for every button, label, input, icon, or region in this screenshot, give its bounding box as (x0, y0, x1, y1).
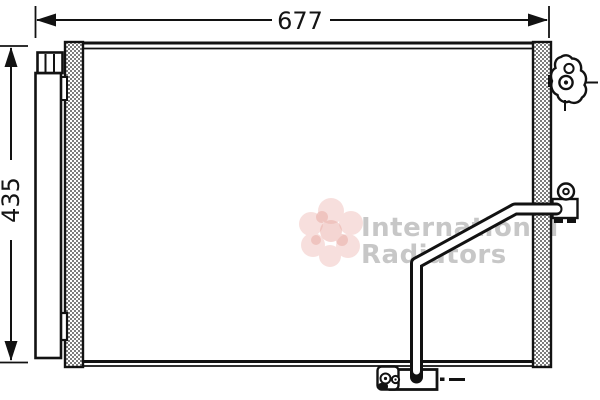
dim-arrow-right-icon (528, 14, 548, 27)
dim-height-label: 435 (0, 177, 25, 223)
dim-arrow-left-icon (36, 14, 56, 27)
drier-top-cap (38, 53, 63, 74)
dimension-height: 435 (0, 46, 28, 363)
dim-arrow-down-icon (5, 341, 18, 361)
condenser-core (65, 42, 551, 367)
bracket-hole-center-dot (564, 80, 568, 84)
receiver-drier (36, 53, 68, 359)
clamp-bolt-small-dot (394, 378, 396, 380)
diagram-canvas: International Radiators 677 435 (0, 0, 600, 400)
mounting-bracket-top-right (548, 55, 600, 114)
fitting-eyelet (558, 184, 574, 200)
dim-width-label: 677 (277, 7, 323, 35)
clamp-foot (378, 383, 388, 390)
centerline-dot (440, 378, 445, 382)
dimension-width: 677 (36, 6, 550, 38)
clamp-bolt-large-dot (384, 377, 387, 380)
drier-body (36, 73, 62, 358)
condenser-technical-drawing: International Radiators 677 435 (0, 0, 600, 400)
dim-arrow-up-icon (5, 47, 18, 67)
